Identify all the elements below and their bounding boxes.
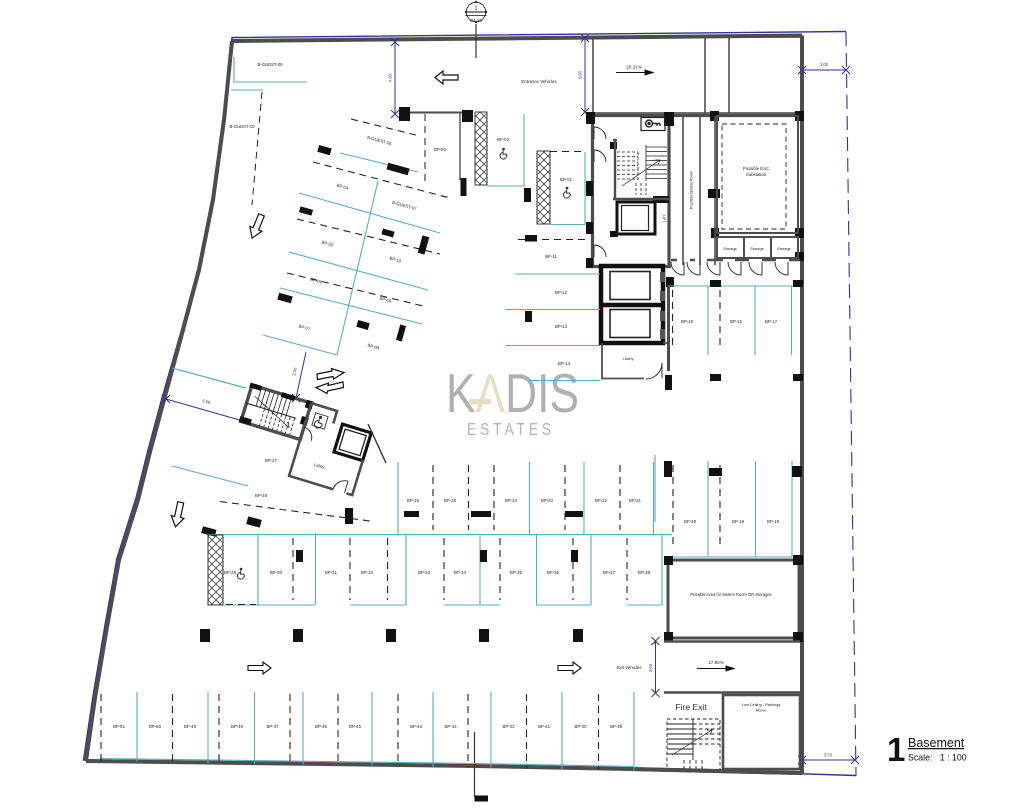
svg-text:BP-05: BP-05 [321, 240, 334, 248]
svg-text:BP-04: BP-04 [336, 183, 349, 191]
svg-text:BP-15: BP-15 [681, 319, 694, 324]
svg-text:BP-45: BP-45 [349, 724, 362, 729]
svg-text:1: 1 [887, 731, 905, 768]
svg-text:BP-43: BP-43 [445, 724, 458, 729]
svg-text:BP-22: BP-22 [595, 498, 608, 503]
svg-text:Storage: Storage [723, 246, 737, 251]
svg-text:BP-01: BP-01 [560, 177, 573, 182]
svg-text:Lobby: Lobby [623, 356, 634, 361]
svg-text:B-GUEST-07: B-GUEST-07 [392, 200, 418, 212]
svg-text:BP-42: BP-42 [503, 724, 516, 729]
svg-text:BP-30: BP-30 [270, 570, 283, 575]
svg-text:BP-03: BP-03 [434, 147, 447, 152]
svg-text:3.70: 3.70 [824, 753, 833, 758]
svg-text:BP-17: BP-17 [765, 319, 778, 324]
svg-text:BP-46: BP-46 [315, 724, 328, 729]
svg-text:BP-51: BP-51 [113, 724, 126, 729]
svg-text:BP-26: BP-26 [407, 498, 420, 503]
svg-text:BP-44: BP-44 [410, 724, 423, 729]
svg-text:ESTATES: ESTATES [467, 419, 555, 439]
svg-text:BP-35: BP-35 [510, 570, 523, 575]
svg-text:BP-36: BP-36 [547, 570, 560, 575]
svg-text:BP-33: BP-33 [418, 570, 431, 575]
svg-text:BP-40: BP-40 [575, 724, 588, 729]
svg-text:BP-13: BP-13 [555, 324, 568, 329]
svg-text:B-GUEST-10: B-GUEST-10 [229, 124, 255, 129]
svg-text:BP-08: BP-08 [367, 343, 380, 351]
svg-text:BP-32: BP-32 [361, 570, 374, 575]
svg-text:BP-25: BP-25 [444, 498, 457, 503]
svg-text:Low Ceiling - Parkings: Low Ceiling - Parkings [742, 702, 781, 707]
svg-text:BP-41: BP-41 [538, 724, 551, 729]
svg-text:BP-49: BP-49 [184, 724, 197, 729]
svg-text:Above: Above [755, 708, 766, 713]
svg-text:Possible Area for Meters Room: Possible Area for Meters Room OR Storage… [690, 592, 771, 597]
svg-text:BP-20: BP-20 [684, 519, 697, 524]
svg-text:B-GUEST-09: B-GUEST-09 [257, 62, 283, 67]
svg-text:BP-48: BP-48 [231, 724, 244, 729]
svg-text:3.00: 3.00 [648, 663, 653, 672]
svg-text:BP-39: BP-39 [610, 724, 623, 729]
svg-text:5.00: 5.00 [578, 70, 583, 79]
svg-text:3.00: 3.00 [820, 62, 829, 67]
svg-text:BP-28: BP-28 [255, 493, 268, 498]
svg-text:Fire Exit: Fire Exit [675, 702, 707, 712]
svg-text:BP-47: BP-47 [267, 724, 280, 729]
svg-text:BP-31: BP-31 [325, 570, 338, 575]
svg-text:Possible EAC: Possible EAC [743, 166, 769, 171]
svg-text:BP-16: BP-16 [730, 319, 743, 324]
svg-text:KΛDIS: KΛDIS [446, 362, 579, 424]
svg-text:17.90%: 17.90% [708, 660, 724, 665]
svg-text:Exit Vehicles: Exit Vehicles [617, 665, 643, 670]
svg-text:BP-27: BP-27 [265, 458, 278, 463]
svg-text:Basement: Basement [908, 736, 965, 750]
svg-text:BP-37: BP-37 [603, 570, 616, 575]
svg-text:Substation: Substation [746, 172, 767, 177]
svg-text:BP-24: BP-24 [505, 498, 518, 503]
svg-text:04-10: 04-10 [470, 18, 482, 23]
svg-text:Storage: Storage [777, 246, 791, 251]
svg-text:Entrance Vehicles: Entrance Vehicles [521, 79, 557, 84]
svg-text:BP-18: BP-18 [767, 519, 780, 524]
svg-text:4.93: 4.93 [388, 73, 393, 82]
svg-text:BP-19: BP-19 [732, 519, 745, 524]
svg-text:B-GUEST-06: B-GUEST-06 [367, 135, 393, 147]
svg-text:15.31%: 15.31% [626, 65, 642, 70]
svg-text:BP-21: BP-21 [629, 498, 642, 503]
svg-text:Possible Meters Room: Possible Meters Room [690, 171, 694, 209]
svg-text:BP-07: BP-07 [298, 324, 311, 332]
svg-text:BP-38: BP-38 [638, 570, 651, 575]
svg-text:BP-06: BP-06 [310, 277, 323, 285]
svg-text:BP-09: BP-09 [379, 296, 392, 304]
svg-text:BP-29: BP-29 [224, 570, 237, 575]
svg-text:1: 1 [475, 6, 478, 12]
svg-text:3.00: 3.00 [291, 367, 298, 377]
svg-text:BP-34: BP-34 [454, 570, 467, 575]
svg-text:Scale: 1 : 100: Scale: 1 : 100 [908, 753, 967, 763]
svg-text:Storage: Storage [750, 246, 764, 251]
svg-text:BP-10: BP-10 [389, 256, 402, 264]
svg-text:BP-23: BP-23 [541, 498, 554, 503]
svg-text:Lobby: Lobby [313, 462, 325, 470]
svg-text:BP-12: BP-12 [555, 290, 568, 295]
svg-text:BP-14: BP-14 [558, 361, 571, 366]
svg-text:LIFT: LIFT [662, 215, 666, 223]
svg-text:BP-02: BP-02 [497, 137, 510, 142]
svg-text:BP-50: BP-50 [149, 724, 162, 729]
svg-text:5.66: 5.66 [202, 398, 212, 405]
svg-text:BP-11: BP-11 [545, 254, 557, 259]
